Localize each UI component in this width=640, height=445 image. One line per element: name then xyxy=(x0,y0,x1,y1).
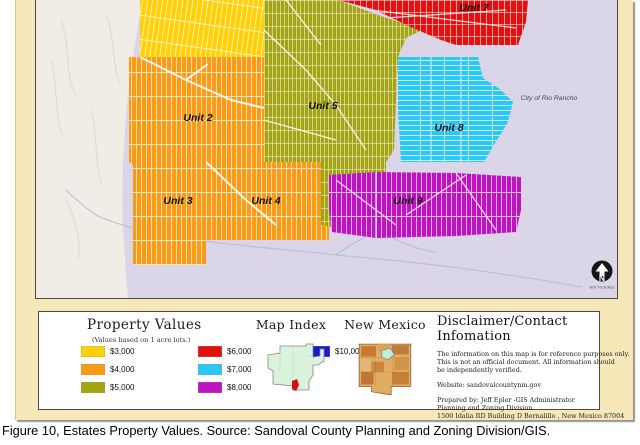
unit-9-street-grid xyxy=(326,170,526,242)
legend-item-label: $4,000 xyxy=(110,365,134,374)
legend-item-label: $3,000 xyxy=(110,347,134,356)
disclaimer-section: Disclaimer/Contact Infomation The inform… xyxy=(437,314,635,420)
swatch-5000 xyxy=(81,382,105,393)
legend-item-label: $7,000 xyxy=(227,365,251,374)
unit-1-street-grid xyxy=(136,0,271,60)
disclaimer-line: The information on this map is for refer… xyxy=(437,350,635,358)
legend-item: $3,000 xyxy=(81,346,134,357)
legend-item: $4,000 xyxy=(81,364,134,375)
north-arrow-note: NOT TO SCALE xyxy=(590,286,615,290)
unit-3-label: Unit 3 xyxy=(163,195,192,207)
disclaimer-title: Disclaimer/Contact Infomation xyxy=(437,314,635,344)
swatch-3000 xyxy=(81,346,105,357)
disclaimer-prepared: Planning and Zoning Division xyxy=(437,404,635,412)
legend-item-label: $6,000 xyxy=(227,347,251,356)
disclaimer-line: be independently verified. xyxy=(437,366,635,374)
property-values-map: Unit 2 Unit 3 Unit 4 Unit 5 Unit 7 Unit … xyxy=(36,0,617,298)
legend-panel: Property Values (Values based on 1 acre … xyxy=(38,311,600,410)
unit-2-label: Unit 2 xyxy=(183,112,212,124)
legend-item: $8,000 xyxy=(198,382,251,393)
disclaimer-website: Website: sandovalcountynm.gov xyxy=(437,381,635,389)
swatch-8000 xyxy=(198,382,222,393)
map-index-title: Map Index xyxy=(245,317,337,332)
legend-item: $6,000 xyxy=(198,346,251,357)
legend-subtitle: (Values based on 1 acre lots.) xyxy=(92,336,190,344)
map-index-county-map xyxy=(263,339,327,401)
svg-text:N: N xyxy=(599,273,605,283)
unit-8-label: Unit 8 xyxy=(434,122,463,134)
legend-item-label: $8,000 xyxy=(227,383,251,392)
unit-7-label: Unit 7 xyxy=(459,2,489,14)
disclaimer-prepared: Prepared by: Jeff Epler -GIS Administrat… xyxy=(437,396,635,404)
map-canvas: Unit 2 Unit 3 Unit 4 Unit 5 Unit 7 Unit … xyxy=(35,0,618,299)
disclaimer-prepared: 1500 Idalia RD Building D Bernalillo , N… xyxy=(437,412,635,420)
swatch-6000 xyxy=(198,346,222,357)
new-mexico-title: New Mexico xyxy=(339,317,431,332)
figure-caption: Figure 10, Estates Property Values. Sour… xyxy=(2,423,638,438)
legend-item: $5,000 xyxy=(81,382,134,393)
city-of-rio-rancho-label: City of Rio Rancho xyxy=(521,95,578,102)
disclaimer-line: This is not an official document. All in… xyxy=(437,358,635,366)
figure-page: Unit 2 Unit 3 Unit 4 Unit 5 Unit 7 Unit … xyxy=(0,0,640,445)
legend-item-label: $5,000 xyxy=(110,383,134,392)
legend-item: $7,000 xyxy=(198,364,251,375)
unit-4-label: Unit 4 xyxy=(251,195,280,207)
unit-5-label: Unit 5 xyxy=(308,100,337,112)
new-mexico-state-map xyxy=(357,339,415,401)
swatch-7000 xyxy=(198,364,222,375)
legend-title: Property Values xyxy=(87,317,202,333)
swatch-4000 xyxy=(81,364,105,375)
unit-9-label: Unit 9 xyxy=(393,195,422,207)
